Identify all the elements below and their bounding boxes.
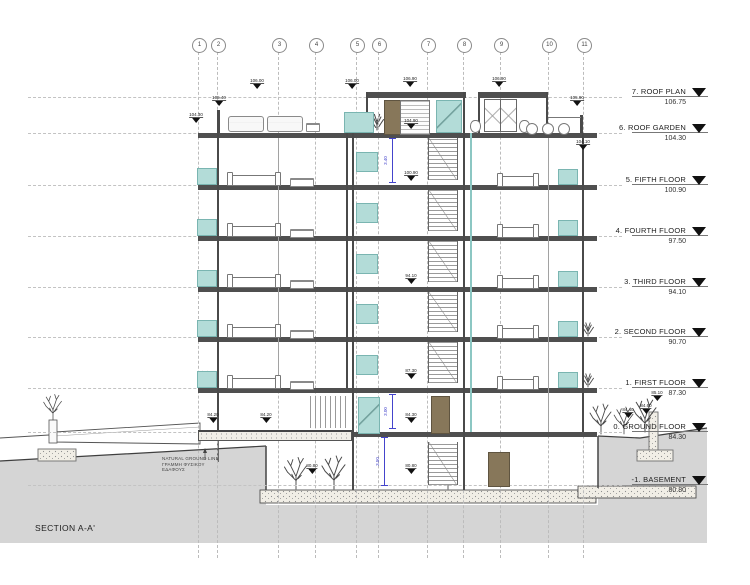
dimensions: 3.403.003.50 — [0, 0, 750, 585]
dimension-line: 3.50 — [384, 437, 385, 486]
note-line-3: ΕΔΑΦΟΥΣ — [162, 467, 232, 473]
dimension-line: 3.00 — [392, 394, 393, 429]
dimension-value: 3.00 — [383, 407, 388, 416]
natural-ground-note: NATURAL GROUND LINE ΓΡΑΜΜΗ ΦΥΣΙΚΟΥ ΕΔΑΦΟ… — [162, 456, 232, 473]
dimension-value: 3.40 — [383, 156, 388, 165]
section-drawing: 1234567891011 — [0, 0, 750, 585]
dimension-value: 3.50 — [375, 457, 380, 466]
section-title: SECTION A-A' — [35, 523, 95, 533]
dimension-line: 3.40 — [392, 138, 393, 183]
